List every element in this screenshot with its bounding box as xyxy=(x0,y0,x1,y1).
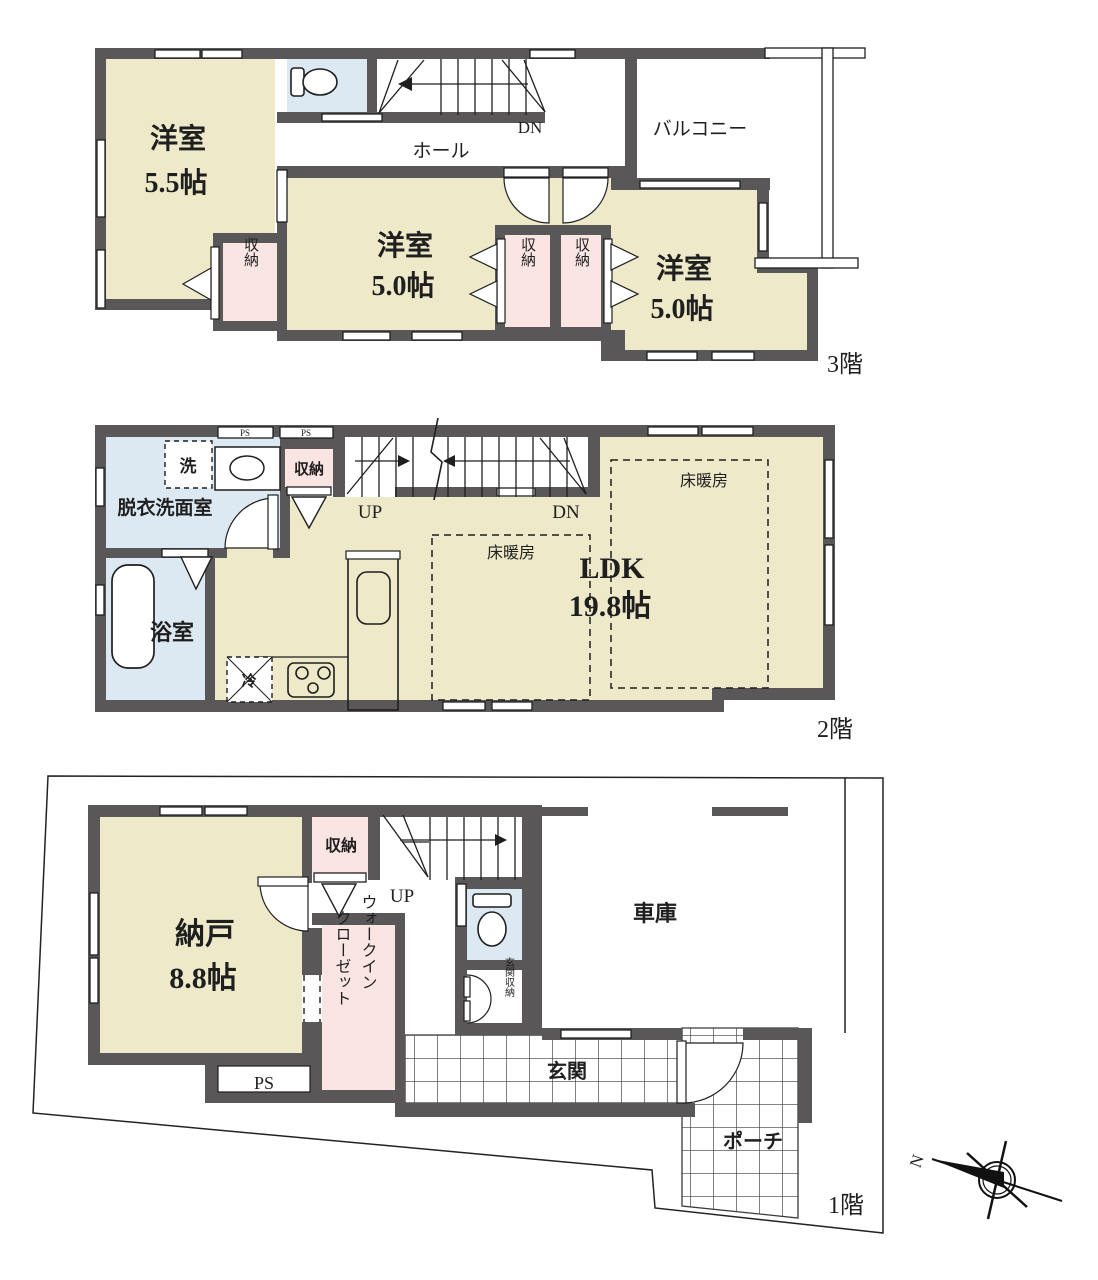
room-size-west55: 5.5帖 xyxy=(144,167,207,199)
entrance-storage-label: 玄関収納 xyxy=(503,956,515,998)
floor1-label: 1階 xyxy=(828,1192,864,1219)
kitchen-opening xyxy=(346,551,400,559)
balcony-label: バルコニー xyxy=(653,119,748,140)
floorplan-page: 洋室 5.5帖 洋室 5.0帖 洋室 5.0帖 ホール DN バルコニー 収納 … xyxy=(0,0,1098,1280)
dn-label-3f: DN xyxy=(518,118,543,137)
garage-label: 車庫 xyxy=(633,901,677,926)
storage-label-1f: 納戸 xyxy=(175,918,235,951)
ldk-label: LDK xyxy=(579,552,645,585)
north-label: N xyxy=(906,1152,928,1170)
room-label-west50c: 洋室 xyxy=(377,229,433,262)
bathtub-icon xyxy=(112,565,154,668)
ldk-size: 19.8帖 xyxy=(569,590,652,623)
hall-label: ホール xyxy=(412,141,469,162)
closet-label-1f: 収納 xyxy=(325,836,357,855)
stairs-3f xyxy=(377,59,545,115)
floor2-label: 2階 xyxy=(817,716,853,743)
up-label-2f: UP xyxy=(358,502,382,523)
room-size-west50c: 5.0帖 xyxy=(371,270,434,302)
floor-1: 納戸 8.8帖 収納 UP 車庫 ウォークイン クローゼット 玄関収納 玄関 ポ… xyxy=(33,776,883,1233)
toilet-icon-3f xyxy=(291,68,337,96)
balcony-railing xyxy=(755,48,865,268)
washroom-door-leaf xyxy=(268,495,278,549)
porch-label: ポーチ xyxy=(723,1129,783,1153)
stairs-1f xyxy=(380,817,522,880)
ps-label-2f-2: PS xyxy=(301,428,311,438)
washer-label: 洗 xyxy=(180,456,197,476)
floor-3: 洋室 5.5帖 洋室 5.0帖 洋室 5.0帖 ホール DN バルコニー 収納 … xyxy=(95,48,865,378)
closet-label-2f: 収納 xyxy=(294,460,324,478)
floor3-label: 3階 xyxy=(827,351,863,378)
closet-label-3f-left: 収納 xyxy=(242,237,259,268)
fridge-label: 冷 xyxy=(241,672,256,690)
ps-label-1f: PS xyxy=(254,1073,274,1093)
storage-size-1f: 8.8帖 xyxy=(169,962,237,995)
entrance-tiles xyxy=(405,1035,682,1103)
floor-2: 脱衣洗面室 洗 冷 浴室 収納 PS PS UP DN 床暖房 床暖房 LDK … xyxy=(95,418,853,743)
wic-label-1: ウォークイン xyxy=(359,894,377,990)
floor-heating-label-1: 床暖房 xyxy=(487,544,535,562)
floorplan-drawing: 洋室 5.5帖 洋室 5.0帖 洋室 5.0帖 ホール DN バルコニー 収納 … xyxy=(0,0,1098,1280)
room-label-west50r: 洋室 xyxy=(656,252,712,285)
wic-opening xyxy=(302,975,322,1022)
room-size-west50r: 5.0帖 xyxy=(650,293,713,325)
vanity-sink-icon xyxy=(215,447,280,490)
bath-label: 浴室 xyxy=(150,620,194,645)
closet-label-3f-mr: 収納 xyxy=(573,237,590,268)
compass-icon: N xyxy=(906,1141,1062,1219)
floor-heating-label-2: 床暖房 xyxy=(680,472,728,490)
room-label-west55: 洋室 xyxy=(150,122,206,155)
closet-label-3f-ml: 収納 xyxy=(519,237,536,268)
dn-label-2f: DN xyxy=(552,502,580,523)
ps-label-2f-1: PS xyxy=(240,428,250,438)
wic-label-2: クローゼット xyxy=(333,910,352,1006)
up-label-1f: UP xyxy=(390,886,414,907)
washroom-label: 脱衣洗面室 xyxy=(117,496,212,519)
entrance-label: 玄関 xyxy=(547,1059,587,1083)
